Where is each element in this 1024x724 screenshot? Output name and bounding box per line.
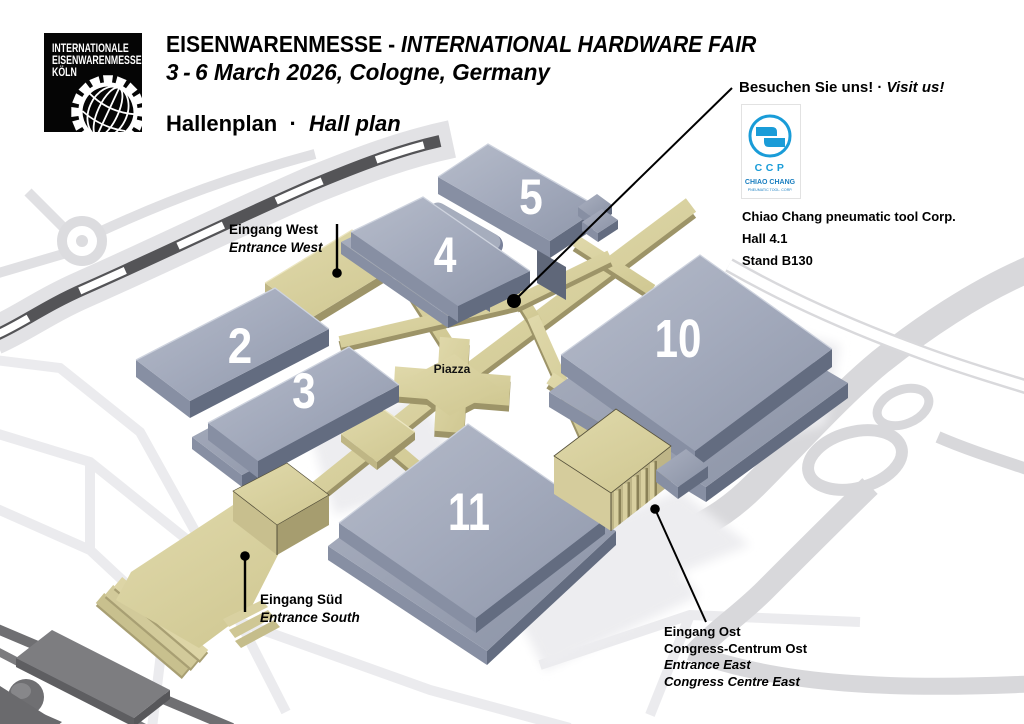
svg-text:CHIAO CHANG: CHIAO CHANG	[745, 179, 796, 186]
svg-text:3: 3	[292, 363, 316, 419]
svg-text:11: 11	[448, 482, 490, 541]
svg-text:PNEUMATIC TOOL. CORP.: PNEUMATIC TOOL. CORP.	[748, 188, 793, 192]
svg-text:Piazza: Piazza	[434, 362, 471, 376]
svg-text:4: 4	[434, 227, 457, 283]
svg-text:5: 5	[519, 169, 543, 225]
svg-text:10: 10	[655, 309, 702, 369]
svg-text:CCP: CCP	[755, 162, 788, 174]
svg-text:2: 2	[228, 317, 252, 373]
